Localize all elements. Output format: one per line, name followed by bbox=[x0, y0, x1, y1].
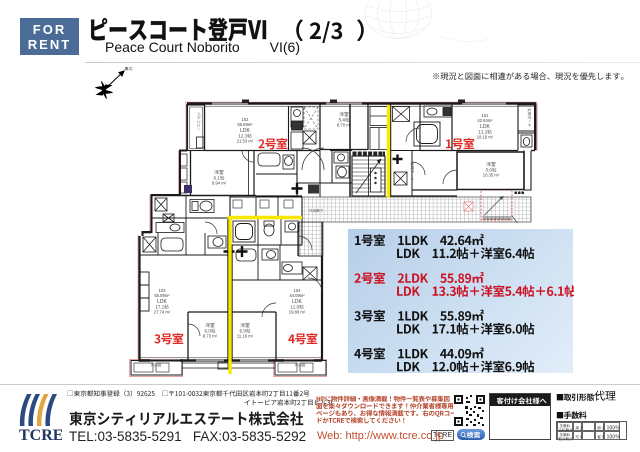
svg-text:19.88 m²: 19.88 m² bbox=[289, 310, 306, 315]
svg-text:55.89m²: 55.89m² bbox=[154, 293, 170, 298]
svg-text:LDK: LDK bbox=[240, 128, 250, 134]
svg-text:27.74 m²: 27.74 m² bbox=[154, 310, 171, 315]
svg-text:44.09m²: 44.09m² bbox=[289, 293, 305, 298]
svg-text:8.73 m²: 8.73 m² bbox=[203, 334, 218, 339]
svg-text:LDK: LDK bbox=[480, 124, 490, 130]
svg-text:LDK: LDK bbox=[292, 299, 302, 305]
svg-text:TCRE: TCRE bbox=[19, 427, 62, 442]
svg-text:55.89m²: 55.89m² bbox=[237, 122, 253, 127]
svg-text:42.64m²: 42.64m² bbox=[477, 118, 493, 123]
svg-text:9.94 m²: 9.94 m² bbox=[212, 181, 227, 186]
svg-text:10.35 m²: 10.35 m² bbox=[483, 173, 500, 178]
svg-text:21.53 m²: 21.53 m² bbox=[237, 139, 254, 144]
svg-text:11.18 m²: 11.18 m² bbox=[237, 334, 254, 339]
svg-text:8.70 m²: 8.70 m² bbox=[337, 123, 352, 128]
svg-text:LDK: LDK bbox=[157, 299, 167, 305]
